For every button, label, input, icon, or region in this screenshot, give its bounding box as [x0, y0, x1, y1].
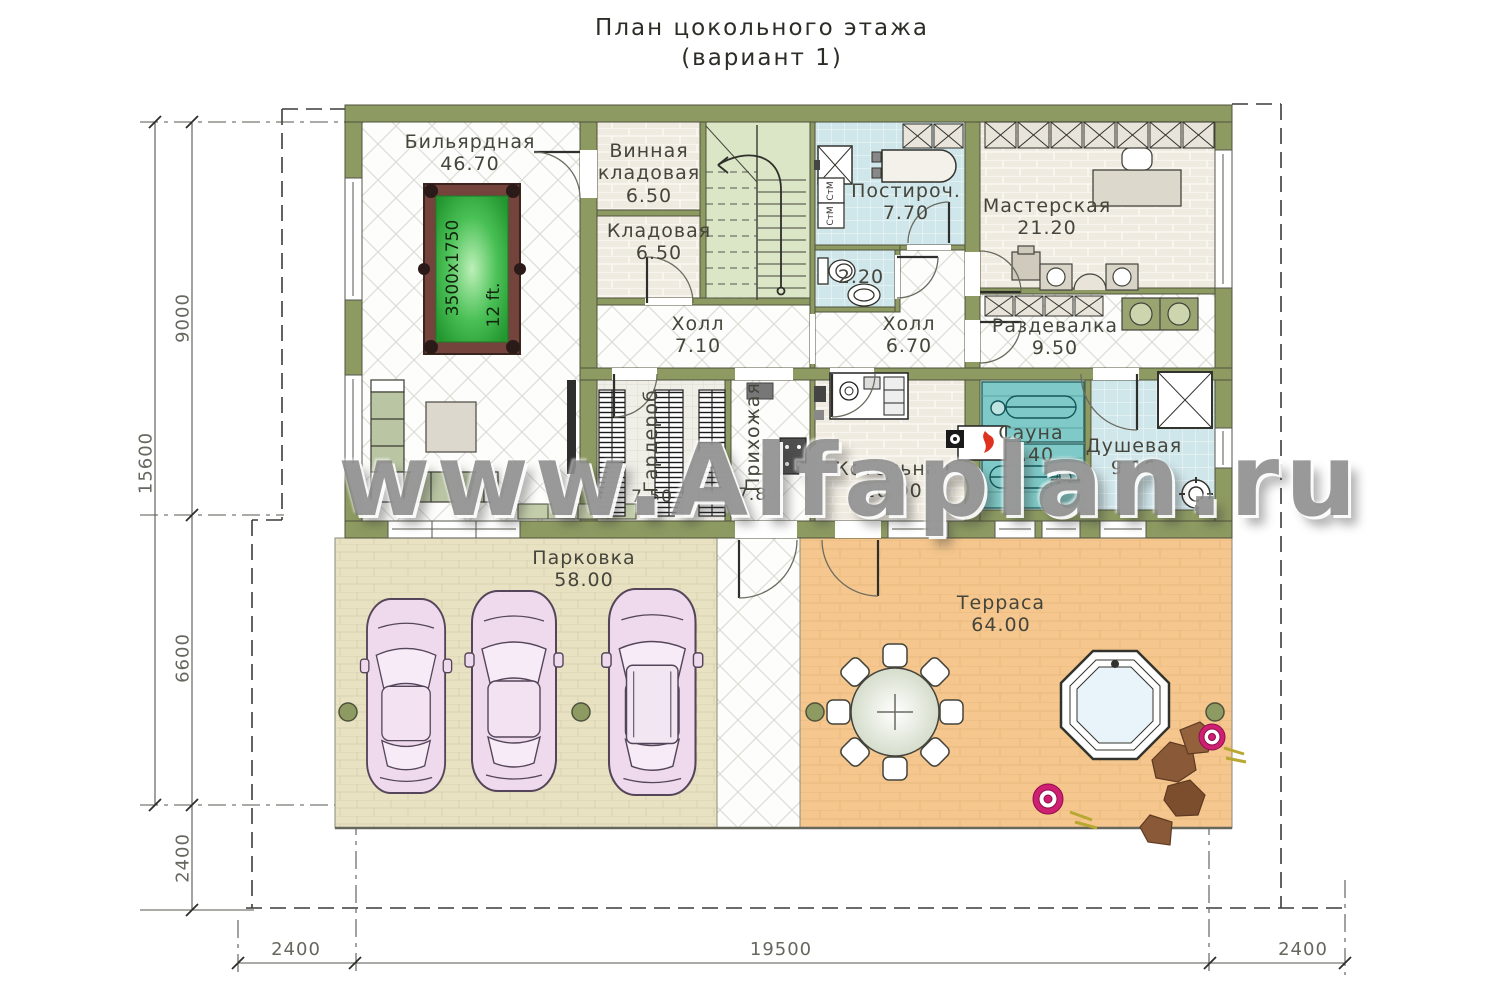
shower-cabin [1158, 372, 1212, 428]
stair-floor [706, 122, 810, 305]
car-3 [602, 589, 703, 795]
lower-level [335, 538, 1246, 845]
ironing-board [872, 150, 956, 182]
shoe-cabinet [780, 438, 806, 474]
washbasin [848, 284, 880, 306]
wardrobe-racks [599, 390, 725, 516]
hot-tub [1061, 651, 1169, 759]
billiard-table [418, 184, 526, 354]
tv-screen [567, 380, 576, 474]
coffee-table [426, 402, 476, 452]
electrical-panel [747, 383, 773, 399]
toilet [818, 258, 855, 284]
hall-left-floor [597, 305, 810, 368]
changing-bench [1122, 298, 1198, 330]
floor-plan-drawing [0, 0, 1500, 1000]
hall-right-notch-floor [900, 250, 965, 312]
wine-storage-floor [597, 122, 700, 210]
floor-plan-page: План цокольного этажа (вариант 1) Бильяр… [0, 0, 1500, 1000]
washing-machines [818, 178, 844, 228]
terrace-table [851, 668, 939, 756]
car-2 [465, 591, 563, 791]
hall-right-floor [815, 312, 965, 368]
workshop-closets [985, 122, 1214, 148]
walkway [717, 538, 800, 828]
car-1 [360, 599, 451, 793]
